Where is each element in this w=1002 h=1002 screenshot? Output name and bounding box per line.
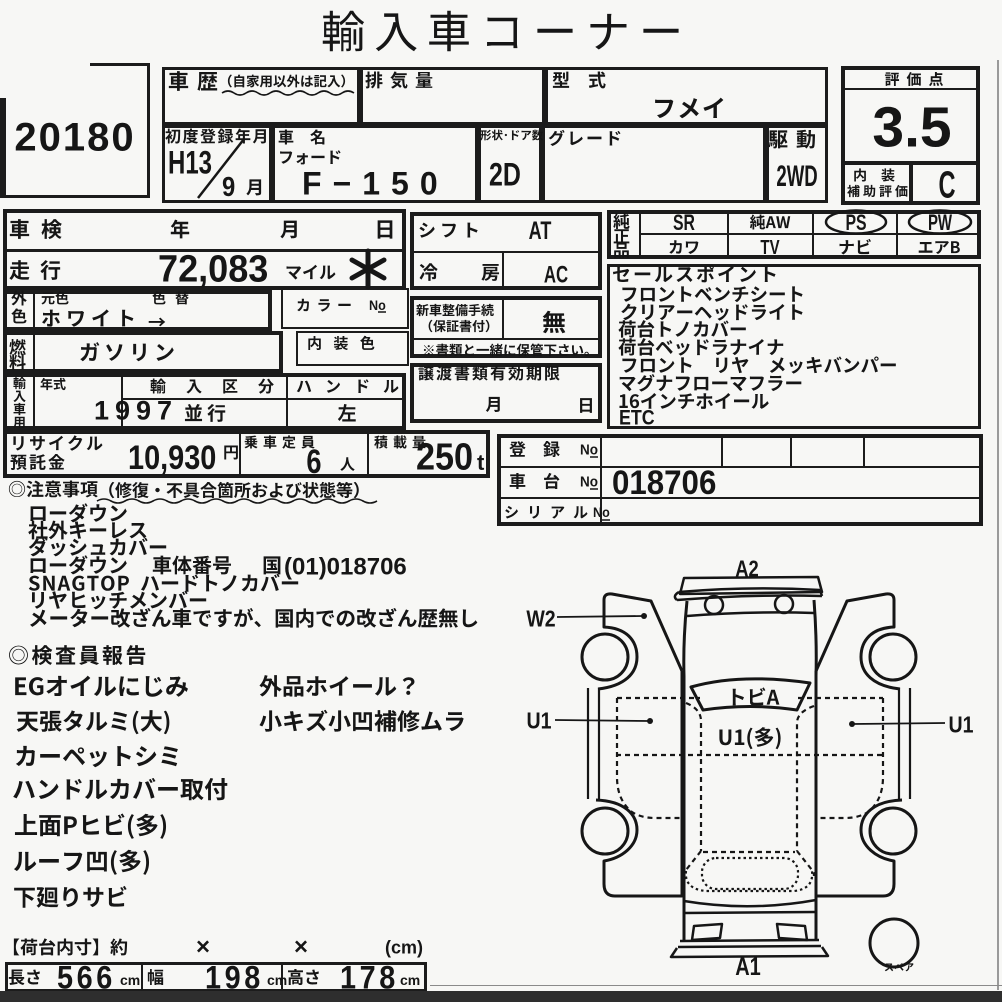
svg-text:72,083: 72,083	[158, 247, 268, 290]
svg-text:H13: H13	[168, 144, 212, 180]
svg-text:AC: AC	[544, 262, 568, 289]
svg-text:U1: U1	[527, 708, 552, 734]
svg-text:×: ×	[294, 934, 308, 961]
svg-text:U1: U1	[949, 712, 974, 738]
svg-text:No: No	[580, 442, 598, 459]
svg-text:018706: 018706	[612, 463, 716, 502]
svg-text:566: 566	[57, 960, 116, 996]
svg-text:A1: A1	[735, 953, 761, 981]
svg-text:9: 9	[222, 170, 235, 202]
svg-text:×: ×	[196, 934, 210, 961]
svg-text:ETC: ETC	[619, 406, 655, 430]
svg-text:C: C	[938, 163, 955, 206]
svg-text:3.5: 3.5	[872, 96, 951, 160]
svg-text:PW: PW	[928, 210, 952, 235]
svg-text:No: No	[369, 297, 386, 313]
svg-text:178: 178	[340, 960, 399, 996]
svg-text:TV: TV	[760, 236, 779, 259]
svg-text:W2: W2	[526, 606, 555, 632]
svg-text:20180: 20180	[14, 115, 135, 159]
svg-text:cm: cm	[400, 972, 420, 988]
svg-text:10,930: 10,930	[128, 438, 216, 477]
svg-text:6: 6	[306, 442, 321, 481]
svg-text:250: 250	[416, 435, 473, 478]
svg-text:No: No	[593, 504, 610, 520]
svg-text:1997: 1997	[94, 396, 178, 426]
svg-text:A2: A2	[735, 556, 759, 581]
svg-text:(cm): (cm)	[385, 938, 423, 958]
svg-text:(01)018706: (01)018706	[284, 554, 407, 581]
svg-text:cm: cm	[120, 972, 140, 988]
svg-text:No: No	[580, 474, 598, 491]
svg-text:198: 198	[205, 960, 264, 996]
svg-text:2D: 2D	[489, 158, 521, 194]
svg-text:t: t	[477, 450, 485, 475]
svg-text:AT: AT	[529, 216, 552, 245]
svg-text:2WD: 2WD	[776, 159, 817, 193]
svg-text:cm: cm	[267, 972, 287, 988]
svg-text:SR: SR	[673, 212, 695, 236]
svg-text:F−150: F−150	[302, 166, 449, 202]
